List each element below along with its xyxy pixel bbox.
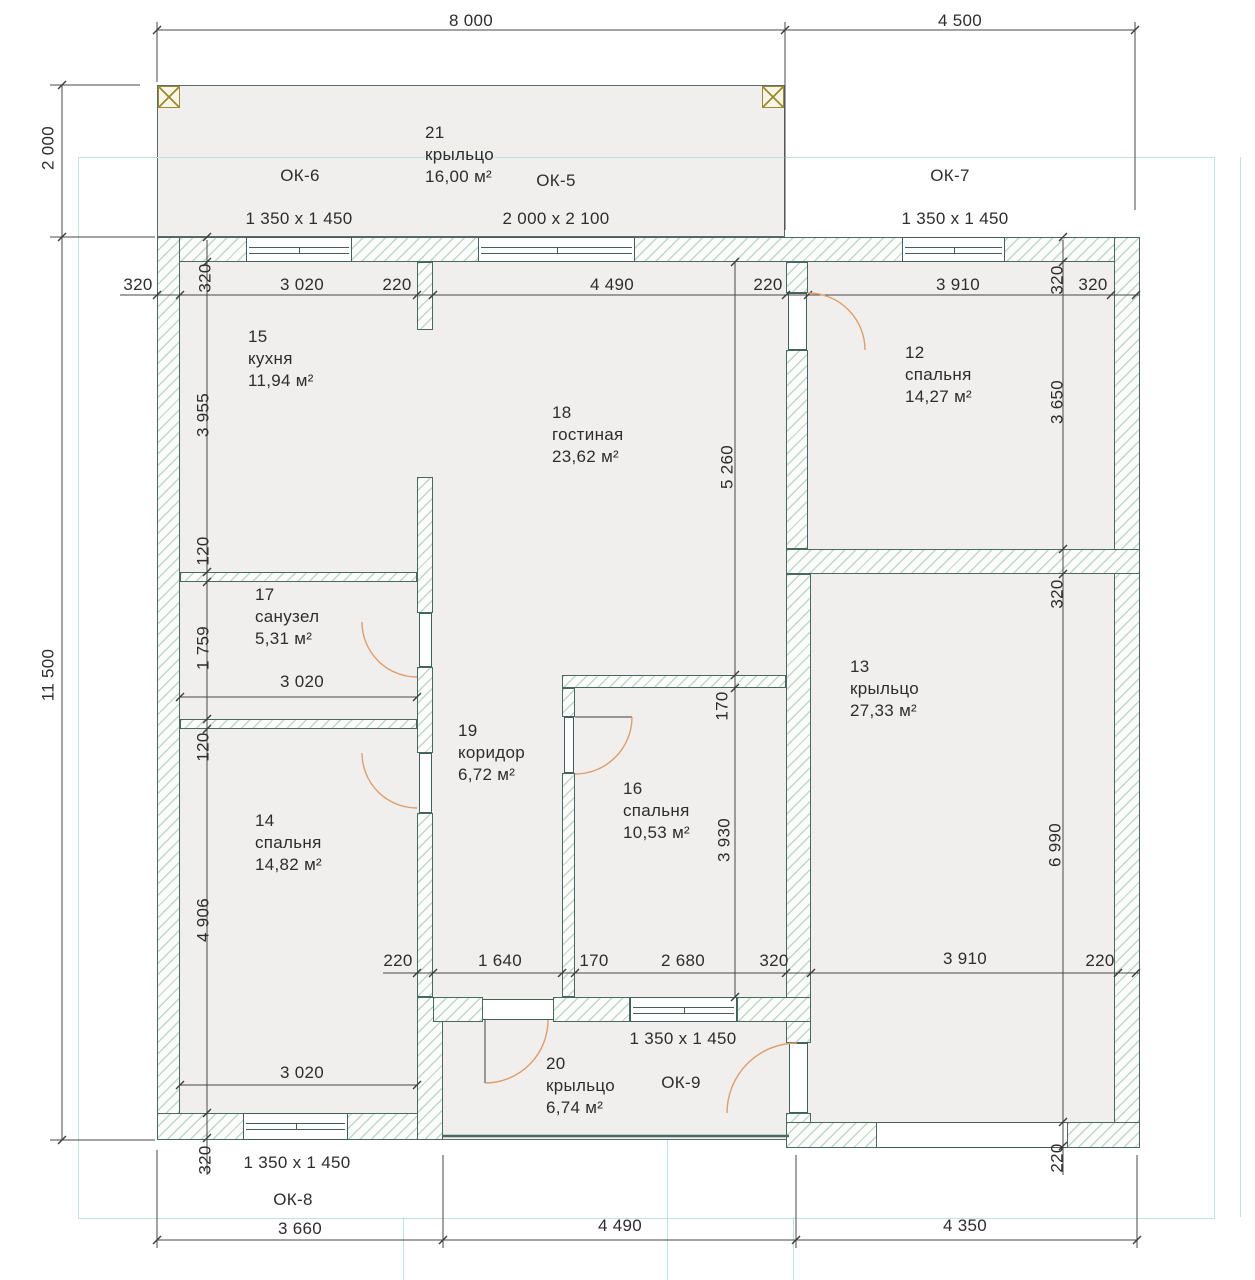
room-label-13: 13крыльцо27,33 м² <box>850 656 919 721</box>
room-label-19: 19коридор6,72 м² <box>458 720 525 785</box>
dim-label: 320 <box>123 276 152 293</box>
dim-label: 1 759 <box>195 626 212 670</box>
window-size-label: 1 350 x 1 450 <box>244 1154 351 1171</box>
column-icon <box>158 86 180 108</box>
dim-label: 220 <box>1049 1143 1066 1172</box>
dim-label: 4 350 <box>943 1217 987 1234</box>
dim-label: 11 500 <box>40 649 57 702</box>
dim-label: 3 660 <box>278 1220 322 1237</box>
dim-label: 3 930 <box>716 818 733 862</box>
dim-label: 220 <box>382 276 411 293</box>
dim-label: 4 490 <box>590 276 634 293</box>
dim-label: 4 906 <box>195 898 212 942</box>
floor-plan-canvas: 8 000 4 500 320 320 3 020 220 4 490 220 … <box>0 0 1255 1280</box>
dim-label: 320 <box>197 1145 214 1174</box>
dim-label: 4 500 <box>938 12 982 29</box>
room-label-16: 16спальня10,53 м² <box>623 778 690 843</box>
dim-label: 220 <box>383 952 412 969</box>
dim-label: 4 490 <box>598 1217 642 1234</box>
room-label-18: 18гостиная23,62 м² <box>552 402 624 467</box>
dim-label: 3 650 <box>1049 380 1066 424</box>
dim-label: 2 000 <box>40 126 57 170</box>
window-size-label: 1 350 x 1 450 <box>902 210 1009 227</box>
dim-label: 6 990 <box>1047 823 1064 867</box>
dimension-lines-layer <box>0 0 1255 1280</box>
room-label-12: 12спальня14,27 м² <box>905 342 972 407</box>
dim-label: 320 <box>197 263 214 292</box>
dim-label: 320 <box>1049 265 1066 294</box>
dim-label: 3 020 <box>280 1064 324 1081</box>
dim-label: 5 260 <box>719 445 736 489</box>
dim-label: 3 955 <box>195 393 212 437</box>
dim-label: 120 <box>195 732 212 761</box>
window-label-ok-6: ОК-6 <box>280 167 319 184</box>
dim-label: 220 <box>753 276 782 293</box>
dim-label: 8 000 <box>449 12 493 29</box>
room-label-15: 15кухня11,94 м² <box>248 326 314 391</box>
window-label-ok-9: ОК-9 <box>661 1074 700 1091</box>
dim-label: 320 <box>1078 276 1107 293</box>
dim-label: 3 020 <box>280 673 324 690</box>
window-label-ok-7: ОК-7 <box>930 167 969 184</box>
dim-label: 2 680 <box>661 952 705 969</box>
window-size-label: 1 350 x 1 450 <box>246 210 353 227</box>
room-label-17: 17санузел5,31 м² <box>255 584 319 649</box>
room-label-20: 20крыльцо6,74 м² <box>546 1053 615 1118</box>
dim-label: 3 910 <box>943 950 987 967</box>
window-label-ok-8: ОК-8 <box>273 1191 312 1208</box>
room-label-21: 21крыльцо16,00 м² <box>425 122 494 187</box>
dim-label: 320 <box>759 952 788 969</box>
window-size-label: 1 350 x 1 450 <box>630 1030 737 1047</box>
window-label-ok-5: ОК-5 <box>536 172 575 189</box>
dim-label: 220 <box>1085 952 1114 969</box>
dim-label: 1 640 <box>478 952 522 969</box>
dim-label: 120 <box>195 536 212 565</box>
dim-label: 170 <box>579 952 608 969</box>
column-icon <box>762 86 784 108</box>
window-size-label: 2 000 x 2 100 <box>503 210 610 227</box>
dim-label: 170 <box>714 691 731 720</box>
dim-label: 3 910 <box>936 276 980 293</box>
room-label-14: 14спальня14,82 м² <box>255 810 322 875</box>
dim-label: 320 <box>1049 579 1066 608</box>
dim-label: 3 020 <box>280 276 324 293</box>
